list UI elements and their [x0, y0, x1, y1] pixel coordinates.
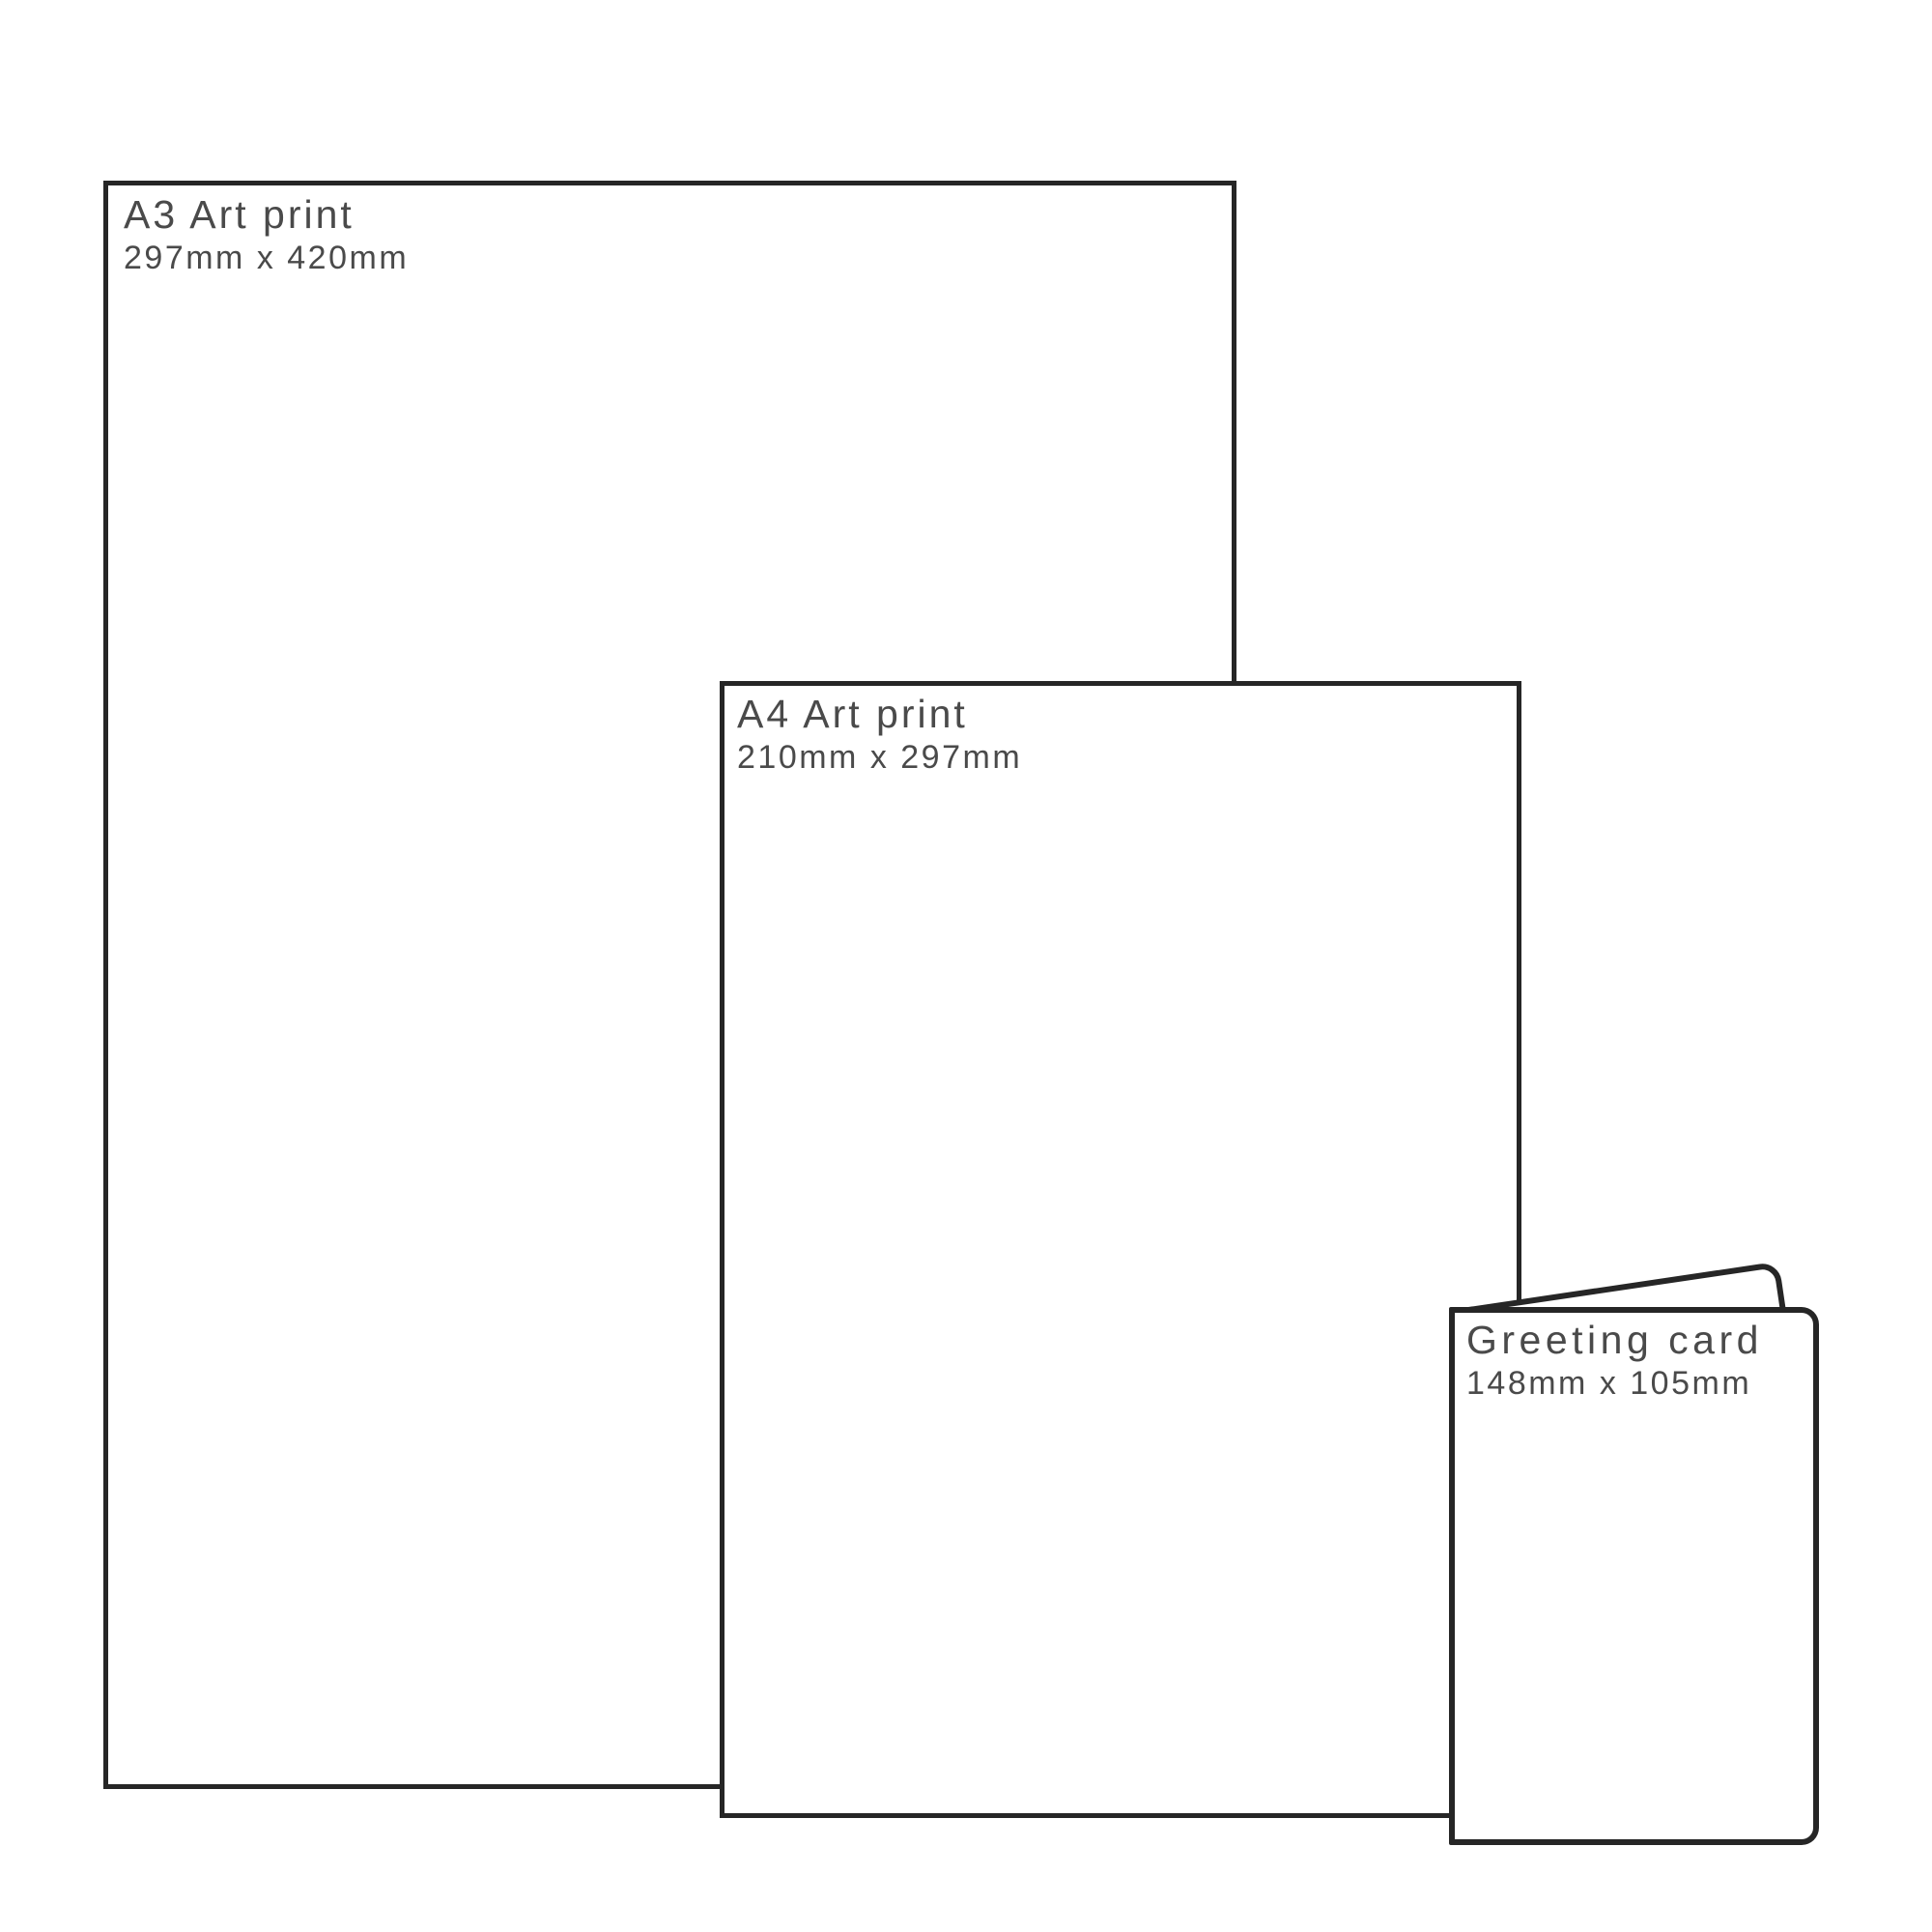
a4-title: A4 Art print: [737, 693, 1022, 736]
a3-title: A3 Art print: [124, 193, 409, 237]
a3-dimensions: 297mm x 420mm: [124, 239, 409, 278]
greeting-card-title: Greeting card: [1466, 1319, 1763, 1362]
a3-label: A3 Art print 297mm x 420mm: [108, 185, 409, 278]
greeting-card-front-panel: Greeting card 148mm x 105mm: [1449, 1307, 1819, 1845]
a4-dimensions: 210mm x 297mm: [737, 738, 1022, 778]
greeting-card-dimensions: 148mm x 105mm: [1466, 1364, 1763, 1404]
greeting-card-label: Greeting card 148mm x 105mm: [1455, 1313, 1763, 1404]
a4-sheet-outline: A4 Art print 210mm x 297mm: [720, 681, 1521, 1818]
size-comparison-diagram: A3 Art print 297mm x 420mm A4 Art print …: [0, 0, 1932, 1932]
a4-label: A4 Art print 210mm x 297mm: [724, 686, 1022, 778]
